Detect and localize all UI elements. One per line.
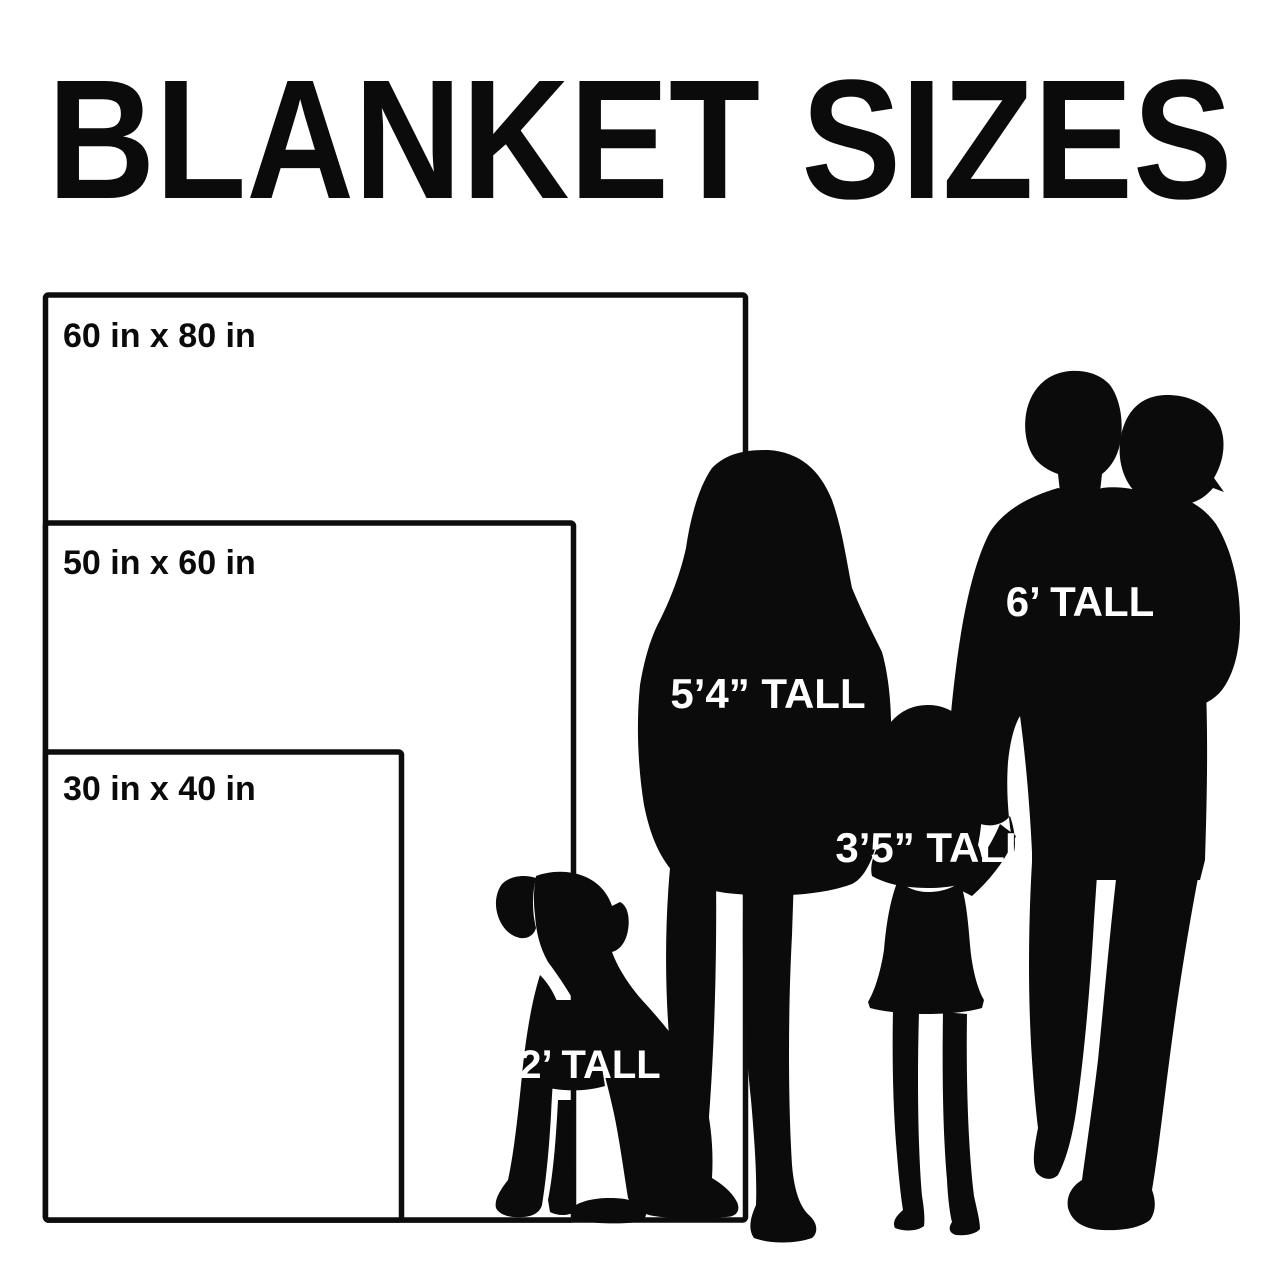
blanket-size-chart: BLANKET SIZES 60 in x 80 in 50 in x 60 i… <box>0 0 1280 1280</box>
blanket-rect-30x40 <box>46 752 402 1220</box>
child-height-label: 3’5” TALL <box>835 824 1030 871</box>
blanket-label-60x80: 60 in x 80 in <box>63 317 256 355</box>
dog-height-label: 2’ TALL <box>519 1043 660 1087</box>
woman-height-label: 5’4” TALL <box>670 670 865 717</box>
blanket-label-50x60: 50 in x 60 in <box>63 544 256 582</box>
man-height-label: 6’ TALL <box>1006 578 1155 625</box>
blanket-label-30x40: 30 in x 40 in <box>63 770 256 808</box>
size-comparison-diagram: BLANKET SIZES 60 in x 80 in 50 in x 60 i… <box>0 0 1280 1280</box>
page-title: BLANKET SIZES <box>48 45 1233 235</box>
